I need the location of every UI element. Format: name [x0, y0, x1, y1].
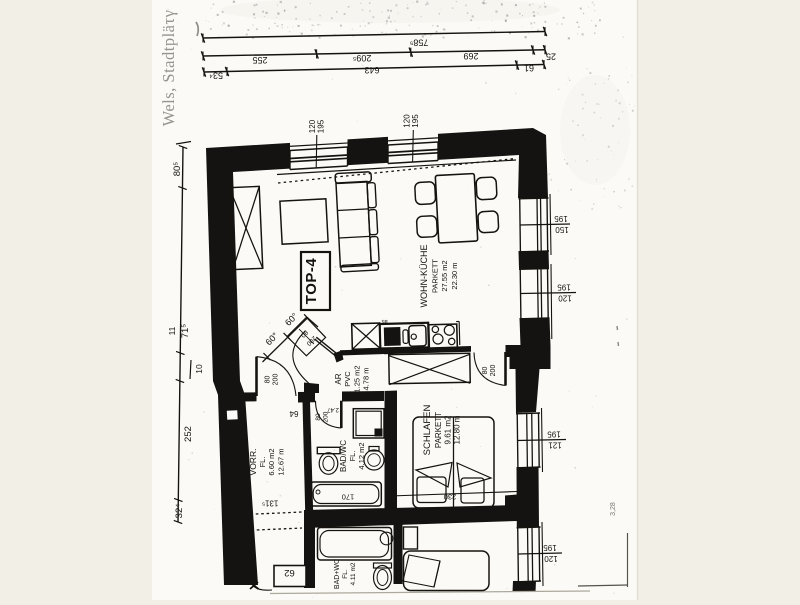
svg-text:53⁴: 53⁴	[209, 71, 223, 81]
svg-text:4.78 m: 4.78 m	[362, 368, 371, 391]
svg-text:121: 121	[548, 441, 562, 450]
svg-text:Wels, Stadtpläτγ: Wels, Stadtpläτγ	[159, 10, 178, 127]
svg-text:9.61 m2: 9.61 m2	[444, 415, 453, 444]
svg-text:PVC: PVC	[343, 371, 352, 387]
svg-text:FL.: FL.	[348, 451, 357, 462]
svg-text:255: 255	[252, 55, 267, 65]
svg-text:3,28: 3,28	[610, 502, 617, 516]
svg-text:200: 200	[273, 374, 280, 386]
svg-text:131⁵: 131⁵	[262, 499, 279, 508]
svg-text:AR: AR	[334, 373, 343, 384]
svg-text:SCHLAFEN: SCHLAFEN	[422, 405, 433, 456]
svg-text:80: 80	[265, 376, 272, 384]
svg-text:195: 195	[554, 214, 568, 223]
svg-text:195: 195	[411, 114, 420, 128]
svg-text:61: 61	[524, 63, 534, 73]
svg-text:WOHN-KÜCHE: WOHN-KÜCHE	[419, 245, 429, 308]
svg-text:200: 200	[490, 365, 497, 377]
svg-text:11: 11	[167, 326, 177, 335]
svg-text:BAD+WC: BAD+WC	[334, 559, 341, 589]
svg-text:12.67 m: 12.67 m	[277, 448, 286, 475]
svg-text:2.47: 2.47	[327, 406, 339, 412]
svg-text:62: 62	[284, 567, 295, 578]
svg-text:BAD/WC: BAD/WC	[339, 440, 348, 472]
svg-text:80: 80	[482, 367, 489, 375]
svg-text:FL.: FL.	[258, 457, 267, 468]
svg-text:PARKETT: PARKETT	[431, 259, 440, 293]
svg-text:85: 85	[381, 318, 387, 324]
svg-text:643: 643	[364, 65, 379, 75]
svg-text:252: 252	[183, 426, 194, 442]
svg-text:195: 195	[317, 119, 326, 133]
svg-text:120: 120	[558, 294, 572, 303]
svg-text:25: 25	[546, 52, 556, 62]
svg-text:32⁴: 32⁴	[174, 504, 185, 519]
svg-text:80: 80	[315, 413, 322, 421]
svg-text:TOP-4: TOP-4	[303, 258, 320, 305]
svg-text:10: 10	[194, 364, 204, 374]
svg-text:71⁵: 71⁵	[180, 324, 191, 339]
svg-text:195: 195	[547, 430, 561, 439]
svg-text:64: 64	[289, 409, 298, 418]
svg-text:22.30 m: 22.30 m	[450, 262, 459, 289]
svg-text:FL.: FL.	[342, 569, 349, 579]
svg-text:209⁵: 209⁵	[352, 53, 371, 63]
svg-text:170: 170	[342, 493, 355, 502]
svg-text:758⁵: 758⁵	[409, 38, 428, 48]
svg-text:VORR.: VORR.	[248, 449, 258, 476]
svg-text:195: 195	[543, 543, 557, 552]
svg-text:150: 150	[555, 225, 569, 234]
svg-text:6.60 m2: 6.60 m2	[267, 448, 276, 475]
svg-text:27.55 m2: 27.55 m2	[440, 260, 449, 291]
svg-text:1.25 m2: 1.25 m2	[353, 365, 362, 392]
svg-text:4.11 m2: 4.11 m2	[350, 562, 357, 585]
svg-text:120: 120	[544, 554, 558, 563]
svg-text:269: 269	[463, 51, 478, 61]
svg-text:195: 195	[557, 283, 571, 292]
svg-text:80⁵: 80⁵	[172, 162, 183, 177]
svg-text:230: 230	[444, 493, 457, 502]
